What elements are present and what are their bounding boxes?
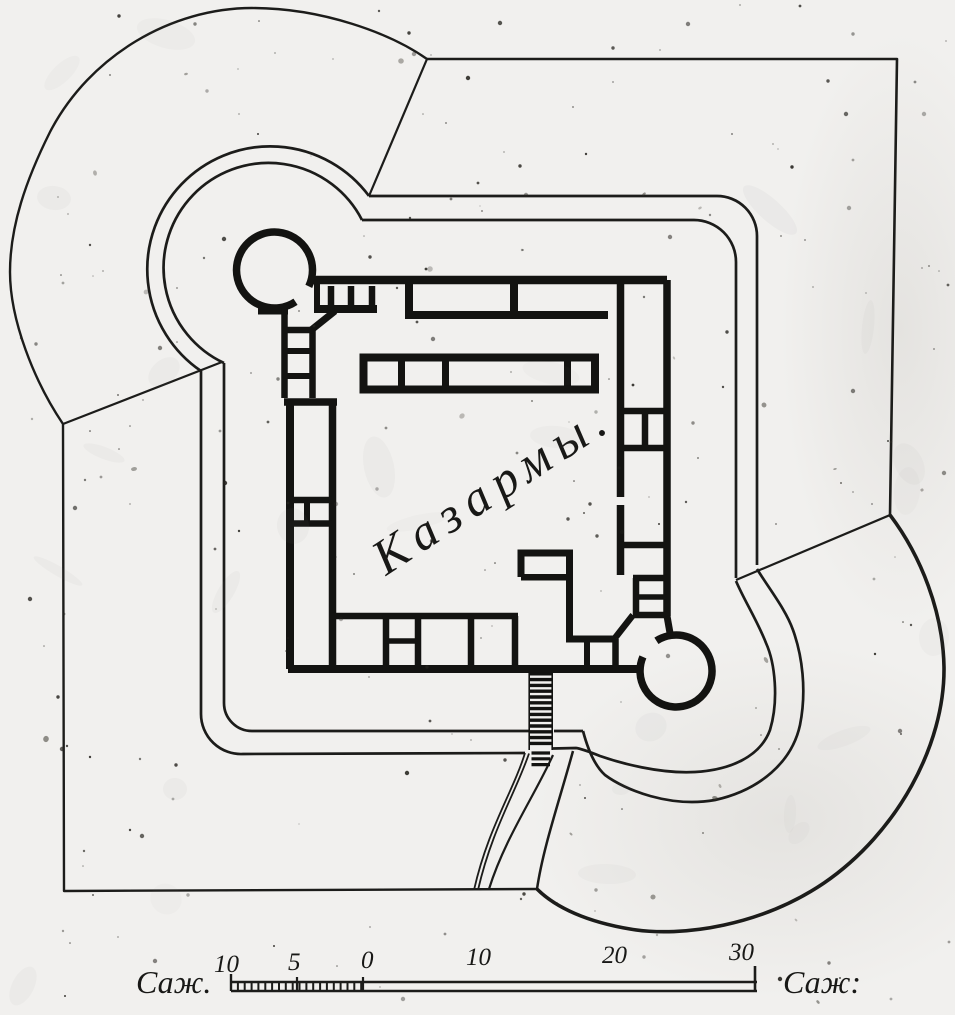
svg-text:Саж.: Саж. — [136, 964, 211, 1000]
svg-text:0: 0 — [361, 947, 374, 974]
svg-text:10: 10 — [214, 951, 240, 978]
svg-text:5: 5 — [288, 949, 301, 976]
svg-text:20: 20 — [602, 942, 628, 969]
svg-text:30: 30 — [728, 939, 755, 966]
svg-text:10: 10 — [466, 944, 492, 971]
svg-text:Саж:: Саж: — [783, 964, 861, 1000]
